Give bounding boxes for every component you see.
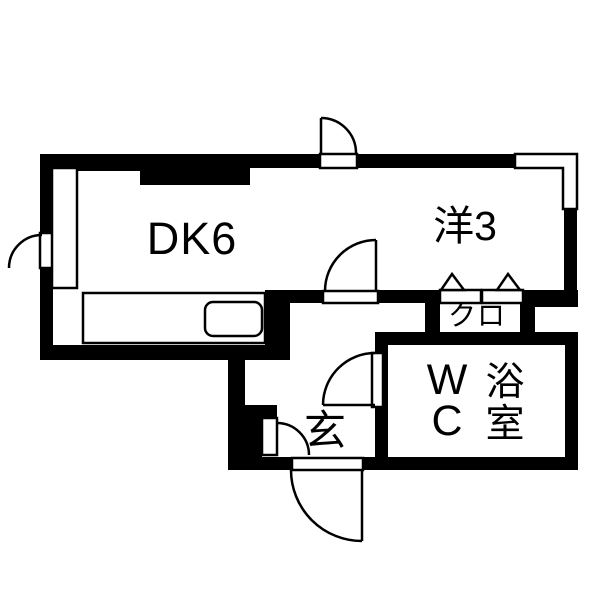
side-counter: [52, 168, 77, 288]
floorplan-canvas: DK6 洋3 クロ 玄 WC 浴室: [0, 0, 600, 600]
entrance-door-jamb: [292, 458, 363, 470]
closet-triangle-icon-right: [497, 274, 520, 290]
wall-middle-left: [270, 290, 323, 303]
label-bath-line2: 室: [485, 403, 524, 446]
top-door-jamb: [320, 154, 357, 168]
floorplan-drawing: [0, 0, 600, 600]
label-bath: 浴室: [477, 362, 533, 446]
dk-door-jamb: [323, 291, 378, 303]
genkan-closet-door-jamb: [262, 418, 277, 455]
label-wc: WC: [418, 360, 476, 442]
wall-top-inset: [140, 168, 250, 185]
left-door-arc: [9, 235, 42, 268]
top-door-arc: [321, 118, 356, 153]
wc-door-arc: [323, 353, 375, 405]
wall-top: [40, 154, 518, 168]
label-wc-line2: C: [431, 397, 462, 445]
dk-door-arc: [325, 240, 376, 291]
label-bath-line1: 浴: [485, 361, 524, 404]
wall-dk-bottom: [40, 345, 290, 360]
closet-door-icons: [441, 274, 520, 290]
label-closet: クロ: [427, 302, 527, 330]
wc-door-jamb: [372, 353, 383, 407]
corner-window: [515, 154, 577, 209]
closet-triangle-icon-left: [441, 274, 464, 290]
wall-right-upper: [564, 208, 577, 295]
label-western-room: 洋3: [403, 206, 527, 247]
counter-ledge-line: [77, 168, 143, 171]
label-dining-kitchen: DK6: [128, 216, 256, 261]
entrance-door-arc: [291, 470, 362, 541]
label-entrance: 玄: [294, 410, 356, 452]
kitchen-sink: [205, 302, 262, 336]
